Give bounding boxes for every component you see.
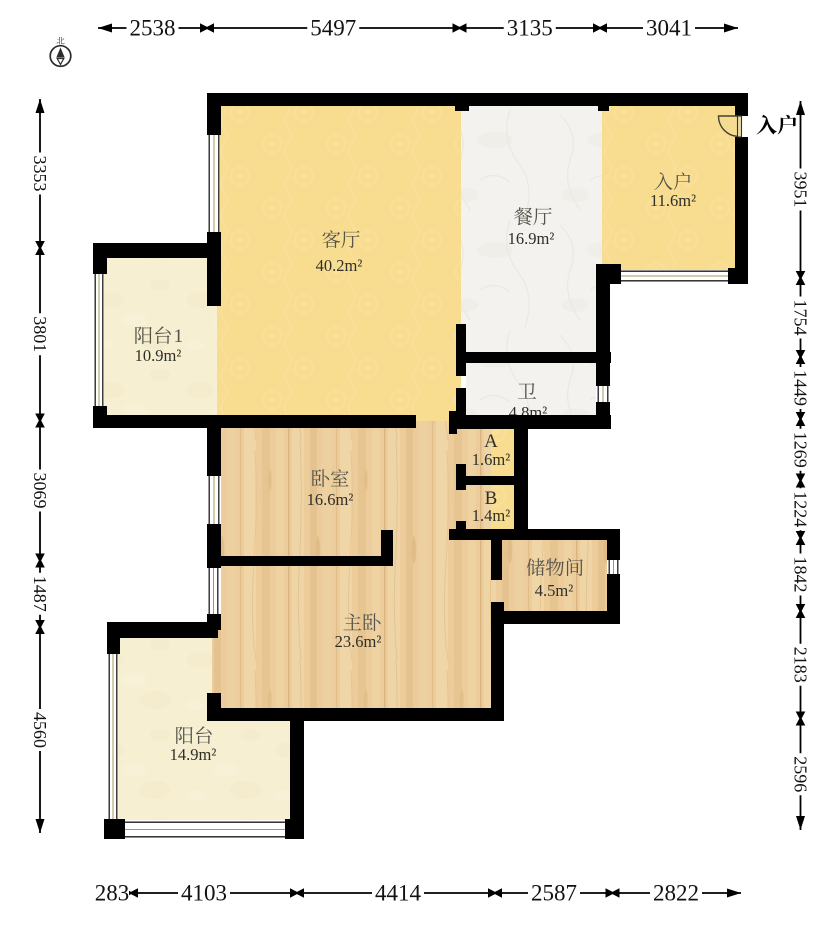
- svg-text:283: 283: [95, 881, 130, 906]
- svg-text:4.5m²: 4.5m²: [535, 581, 573, 600]
- svg-text:16.9m²: 16.9m²: [508, 229, 555, 248]
- svg-text:11.6m²: 11.6m²: [650, 191, 696, 210]
- svg-text:1224: 1224: [791, 491, 811, 527]
- svg-text:1.4m²: 1.4m²: [472, 506, 510, 525]
- svg-text:3951: 3951: [791, 172, 811, 208]
- svg-text:2538: 2538: [130, 16, 176, 41]
- svg-text:10.9m²: 10.9m²: [135, 346, 182, 365]
- svg-text:1449: 1449: [791, 370, 811, 406]
- svg-text:1842: 1842: [791, 557, 811, 593]
- svg-text:4414: 4414: [375, 881, 422, 906]
- svg-text:3135: 3135: [507, 16, 553, 41]
- svg-text:3801: 3801: [30, 316, 50, 352]
- svg-text:40.2m²: 40.2m²: [316, 256, 363, 275]
- svg-text:1.6m²: 1.6m²: [472, 450, 510, 469]
- svg-text:2822: 2822: [653, 881, 699, 906]
- svg-text:1269: 1269: [791, 432, 811, 468]
- svg-text:3353: 3353: [30, 156, 50, 192]
- svg-text:1: 1: [174, 326, 184, 347]
- svg-text:5497: 5497: [310, 16, 356, 41]
- svg-text:4560: 4560: [30, 712, 50, 748]
- svg-text:1487: 1487: [30, 576, 50, 612]
- svg-text:23.6m²: 23.6m²: [335, 632, 382, 651]
- svg-text:16.6m²: 16.6m²: [307, 490, 354, 509]
- svg-text:4103: 4103: [181, 881, 227, 906]
- svg-text:14.9m²: 14.9m²: [170, 745, 217, 764]
- svg-text:2596: 2596: [791, 756, 811, 792]
- svg-text:3041: 3041: [646, 16, 692, 41]
- svg-text:2587: 2587: [531, 881, 577, 906]
- svg-text:1754: 1754: [791, 300, 811, 336]
- svg-text:2183: 2183: [791, 647, 811, 683]
- svg-text:3069: 3069: [30, 473, 50, 509]
